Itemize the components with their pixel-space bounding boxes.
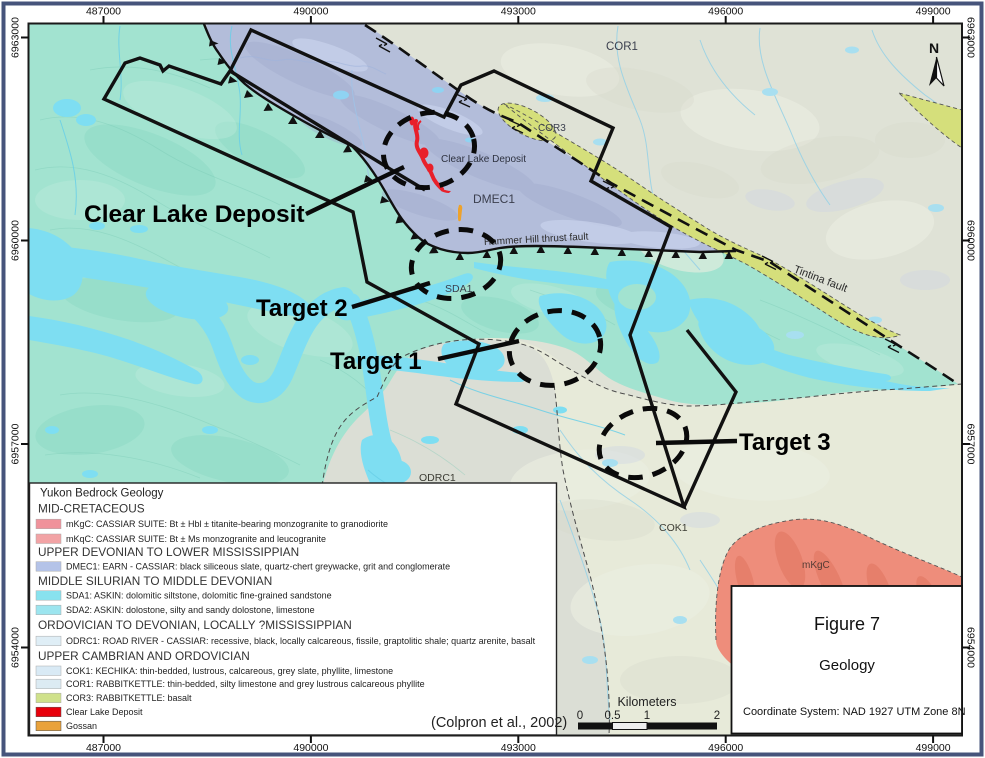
svg-text:ODRC1: ROAD RIVER - CASSIAR: r: ODRC1: ROAD RIVER - CASSIAR: recessive, …: [66, 636, 536, 646]
svg-text:Yukon Bedrock Geology: Yukon Bedrock Geology: [40, 488, 164, 500]
svg-text:DMEC1: DMEC1: [473, 192, 515, 206]
svg-text:COR3: RABBITKETTLE: basalt: COR3: RABBITKETTLE: basalt: [66, 693, 192, 703]
svg-text:MID-CRETACEOUS: MID-CRETACEOUS: [38, 502, 145, 516]
svg-text:DMEC1: EARN - CASSIAR: black s: DMEC1: EARN - CASSIAR: black siliceous s…: [66, 562, 450, 572]
svg-text:mKgC: CASSIAR SUITE: Bt ± Hbl: mKgC: CASSIAR SUITE: Bt ± Hbl ± titanite…: [66, 519, 388, 529]
svg-text:6954000: 6954000: [10, 627, 22, 668]
svg-text:496000: 496000: [708, 6, 743, 18]
svg-text:COK1: KECHIKA: thin-bedded, lu: COK1: KECHIKA: thin-bedded, lustrous, ca…: [66, 666, 393, 676]
svg-text:6957000: 6957000: [965, 424, 977, 465]
svg-text:SDA2: ASKIN: dolostone, silty: SDA2: ASKIN: dolostone, silty and sandy …: [66, 605, 315, 615]
svg-text:6960000: 6960000: [10, 220, 22, 261]
svg-text:6963000: 6963000: [965, 17, 977, 58]
svg-text:1: 1: [644, 710, 650, 722]
svg-text:COR3: COR3: [538, 123, 566, 134]
svg-text:UPPER DEVONIAN TO LOWER MISSIS: UPPER DEVONIAN TO LOWER MISSISSIPPIAN: [38, 545, 299, 559]
svg-text:6960000: 6960000: [965, 220, 977, 261]
svg-text:496000: 496000: [708, 742, 743, 754]
svg-text:Target 3: Target 3: [739, 429, 831, 456]
svg-text:Clear Lake Deposit: Clear Lake Deposit: [66, 707, 143, 717]
svg-text:N: N: [929, 40, 939, 56]
svg-text:COR1: COR1: [606, 41, 638, 53]
svg-text:499000: 499000: [916, 6, 951, 18]
svg-text:mKgC: mKgC: [802, 560, 830, 571]
svg-text:493000: 493000: [501, 6, 536, 18]
svg-text:SDA1: ASKIN: dolomitic siltsto: SDA1: ASKIN: dolomitic siltstone, dolomi…: [66, 591, 332, 601]
svg-text:Kilometers: Kilometers: [617, 695, 676, 709]
svg-text:COR1: RABBITKETTLE: thin-bedde: COR1: RABBITKETTLE: thin-bedded, silty l…: [66, 679, 425, 689]
svg-text:Coordinate System: NAD 1927 UT: Coordinate System: NAD 1927 UTM Zone 8N: [743, 706, 966, 718]
svg-text:ODRC1: ODRC1: [419, 472, 456, 484]
svg-text:SDA1: SDA1: [445, 283, 473, 295]
svg-text:Figure 7: Figure 7: [814, 614, 880, 634]
svg-text:6957000: 6957000: [10, 423, 22, 464]
svg-text:(Colpron et al., 2002): (Colpron et al., 2002): [431, 715, 567, 731]
svg-text:487000: 487000: [86, 6, 121, 18]
svg-text:2: 2: [714, 710, 720, 722]
svg-text:ORDOVICIAN TO DEVONIAN, LOCALL: ORDOVICIAN TO DEVONIAN, LOCALLY ?MISSISS…: [38, 618, 352, 632]
svg-text:MIDDLE SILURIAN TO MIDDLE DEVO: MIDDLE SILURIAN TO MIDDLE DEVONIAN: [38, 574, 272, 588]
svg-text:499000: 499000: [916, 742, 951, 754]
svg-text:6954000: 6954000: [965, 627, 977, 668]
svg-text:493000: 493000: [501, 742, 536, 754]
svg-text:487000: 487000: [86, 742, 121, 754]
svg-text:Target 2: Target 2: [256, 295, 348, 322]
svg-text:UPPER CAMBRIAN AND ORDOVICIAN: UPPER CAMBRIAN AND ORDOVICIAN: [38, 649, 250, 663]
svg-text:Clear Lake Deposit: Clear Lake Deposit: [84, 201, 305, 228]
svg-text:mKqC: CASSIAR SUITE: Bt ± Ms m: mKqC: CASSIAR SUITE: Bt ± Ms monzogranit…: [66, 534, 326, 544]
svg-text:6963000: 6963000: [10, 17, 22, 58]
svg-text:490000: 490000: [293, 6, 328, 18]
svg-text:Gossan: Gossan: [66, 721, 97, 731]
svg-text:490000: 490000: [293, 742, 328, 754]
svg-text:0: 0: [577, 710, 583, 722]
svg-text:Target 1: Target 1: [330, 348, 422, 375]
svg-text:Clear Lake Deposit: Clear Lake Deposit: [441, 154, 526, 165]
svg-text:0.5: 0.5: [605, 710, 621, 722]
svg-text:Geology: Geology: [819, 657, 875, 674]
svg-text:COK1: COK1: [659, 522, 688, 534]
